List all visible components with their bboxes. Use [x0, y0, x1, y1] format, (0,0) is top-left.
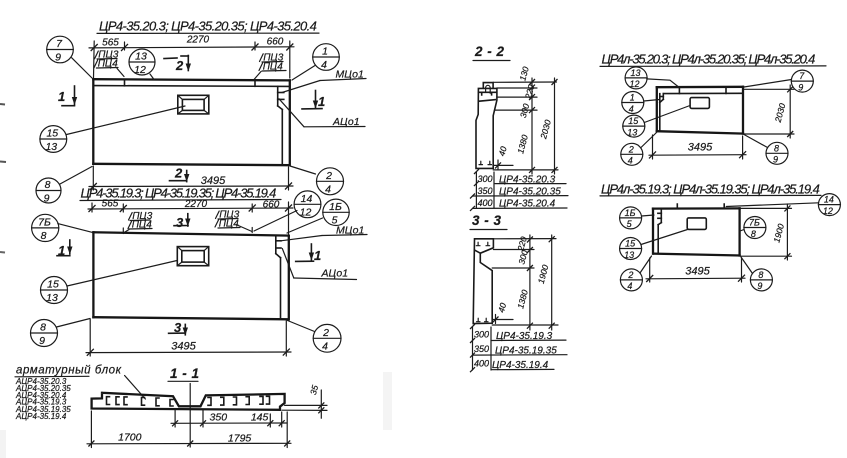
svg-text:1: 1 — [630, 93, 635, 103]
svg-text:400: 400 — [474, 359, 489, 369]
svg-text:ЦР4-35.20.4: ЦР4-35.20.4 — [499, 199, 556, 210]
svg-text:8: 8 — [40, 322, 46, 334]
svg-text:1: 1 — [318, 94, 325, 109]
svg-text:13: 13 — [46, 292, 58, 304]
svg-text:12: 12 — [823, 206, 833, 216]
svg-text:8: 8 — [45, 179, 51, 191]
svg-text:ЦР4л-35.19.3; ЦР4л-35.19.35; Ц: ЦР4л-35.19.3; ЦР4л-35.19.35; ЦР4л-35.19.… — [601, 182, 820, 197]
svg-text:3495: 3495 — [685, 266, 710, 278]
svg-text:9: 9 — [757, 281, 762, 291]
svg-text:13: 13 — [630, 68, 640, 78]
svg-text:1700: 1700 — [118, 432, 142, 444]
svg-text:2: 2 — [627, 270, 633, 280]
svg-text:1795: 1795 — [228, 433, 252, 445]
svg-text:2: 2 — [325, 170, 332, 182]
svg-text:4: 4 — [629, 104, 634, 114]
svg-text:1: 1 — [322, 46, 328, 58]
svg-text:2: 2 — [175, 58, 184, 73]
svg-text:3: 3 — [176, 215, 184, 230]
svg-text:1Б: 1Б — [329, 201, 342, 213]
svg-text:13: 13 — [45, 141, 57, 153]
svg-text:ЦР4-35.19.4: ЦР4-35.19.4 — [492, 360, 549, 371]
svg-text:12: 12 — [134, 64, 146, 76]
svg-text:АЦР4-35.19.4: АЦР4-35.19.4 — [15, 412, 67, 421]
svg-text:2: 2 — [322, 327, 329, 339]
svg-text:4: 4 — [322, 341, 328, 353]
svg-text:2270: 2270 — [184, 199, 208, 210]
svg-text:3 - 3: 3 - 3 — [472, 213, 502, 228]
svg-text:2: 2 — [628, 144, 634, 154]
svg-text:ЦР4-35.20.3: ЦР4-35.20.3 — [499, 175, 556, 186]
svg-text:5: 5 — [332, 214, 338, 226]
svg-text:ЦР4-35.19.3: ЦР4-35.19.3 — [496, 331, 553, 342]
svg-text:ЦР4-35.20.3; ЦР4-35.20.35; ЦР4: ЦР4-35.20.3; ЦР4-35.20.35; ЦР4-35.20.4 — [99, 19, 317, 34]
svg-text:ЦР4-35.19.35: ЦР4-35.19.35 — [495, 346, 557, 357]
svg-text:3495: 3495 — [688, 142, 713, 154]
svg-text:МЦо1: МЦо1 — [336, 69, 364, 81]
svg-text:7Б: 7Б — [749, 218, 760, 228]
svg-text:МЦо1: МЦо1 — [336, 225, 364, 237]
svg-text:4: 4 — [628, 156, 633, 166]
svg-text:2270: 2270 — [186, 35, 210, 46]
svg-text:13: 13 — [624, 250, 634, 260]
svg-text:8: 8 — [41, 230, 47, 242]
svg-text:9: 9 — [55, 52, 61, 64]
svg-text:350: 350 — [474, 344, 489, 354]
svg-text:3495: 3495 — [171, 341, 196, 353]
svg-text:400: 400 — [477, 198, 492, 208]
svg-text:14: 14 — [301, 193, 313, 205]
svg-text:12: 12 — [629, 79, 639, 89]
svg-text:13: 13 — [627, 127, 637, 137]
svg-text:АЦо1: АЦо1 — [332, 116, 360, 128]
svg-text:660: 660 — [267, 37, 284, 48]
svg-text:7Б: 7Б — [38, 217, 51, 229]
svg-text:565: 565 — [102, 38, 119, 49]
svg-text:8: 8 — [751, 229, 756, 239]
svg-text:2: 2 — [174, 166, 183, 181]
svg-text:ЦР4-35.20.35: ЦР4-35.20.35 — [499, 187, 561, 198]
svg-text:АЦо1: АЦо1 — [321, 268, 349, 280]
svg-text:1 - 1: 1 - 1 — [170, 366, 200, 381]
svg-text:15: 15 — [46, 128, 58, 140]
svg-text:2 - 2: 2 - 2 — [474, 44, 505, 59]
svg-text:9: 9 — [798, 82, 803, 92]
svg-text:9: 9 — [44, 193, 50, 205]
svg-text:145: 145 — [251, 412, 269, 424]
svg-text:12: 12 — [300, 206, 312, 218]
svg-text:4: 4 — [627, 281, 632, 291]
svg-text:4: 4 — [321, 59, 327, 71]
svg-text:565: 565 — [102, 199, 119, 210]
svg-text:9: 9 — [39, 335, 45, 347]
svg-text:15: 15 — [625, 239, 636, 249]
svg-text:9: 9 — [773, 155, 778, 165]
svg-text:арматурный блок: арматурный блок — [16, 365, 122, 377]
svg-text:8: 8 — [758, 270, 763, 280]
svg-text:1Б: 1Б — [625, 208, 636, 218]
svg-text:ЦР4л-35.20.3; ЦР4л-35.20.35; Ц: ЦР4л-35.20.3; ЦР4л-35.20.35; ЦР4л-35.20.… — [602, 52, 816, 67]
svg-text:14: 14 — [824, 195, 834, 205]
svg-text:350: 350 — [477, 186, 492, 196]
svg-text:350: 350 — [210, 412, 228, 424]
svg-text:300: 300 — [474, 330, 489, 340]
svg-text:660: 660 — [263, 200, 280, 211]
svg-text:4: 4 — [325, 183, 331, 195]
svg-text:8: 8 — [774, 143, 779, 153]
svg-text:300: 300 — [477, 174, 492, 184]
svg-text:1: 1 — [314, 248, 321, 263]
svg-text:1: 1 — [58, 89, 65, 104]
svg-text:15: 15 — [47, 279, 59, 291]
svg-text:13: 13 — [135, 51, 147, 63]
svg-text:15: 15 — [628, 116, 639, 126]
